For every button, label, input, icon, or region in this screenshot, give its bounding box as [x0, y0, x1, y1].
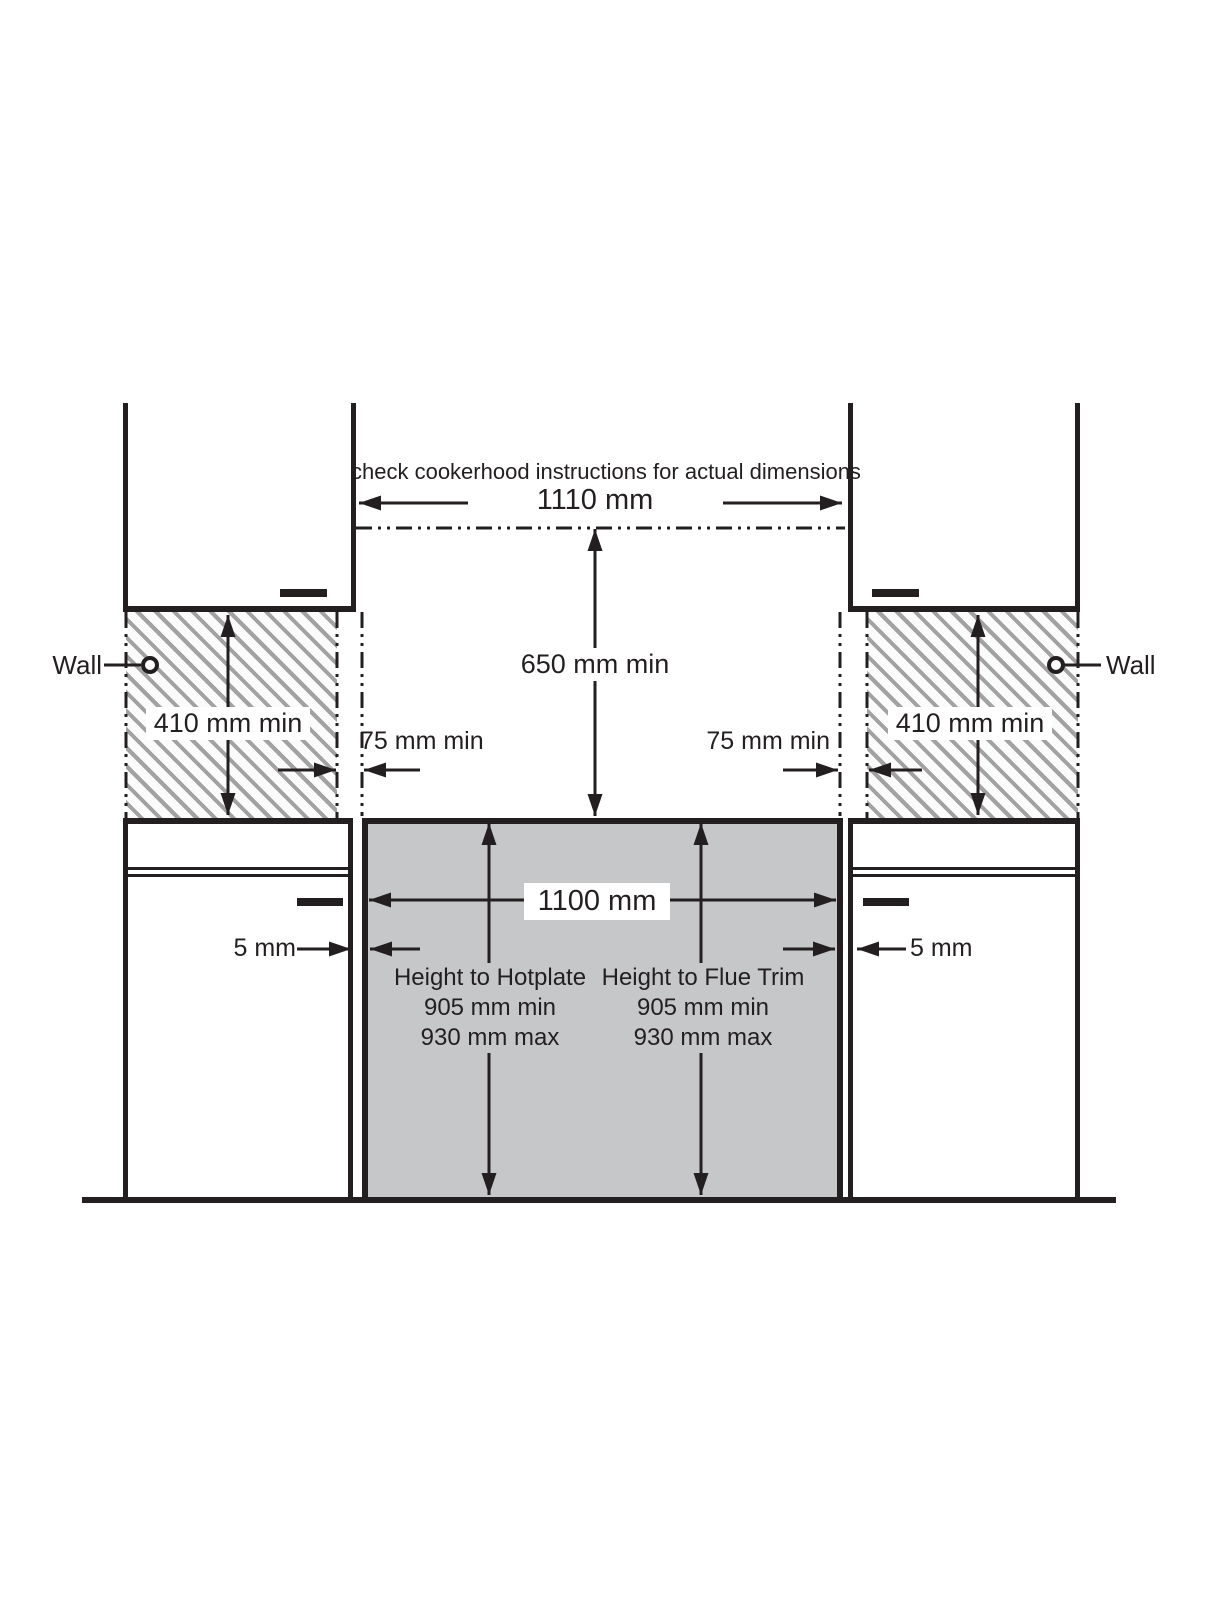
- wall-label-right: Wall: [1106, 650, 1196, 681]
- floor-line: [82, 1197, 1116, 1203]
- dim-label-1100: 1100 mm: [497, 883, 697, 920]
- installation-diagram: check cookerhood instructions for actual…: [0, 0, 1208, 1611]
- cabinet-handle: [872, 589, 919, 597]
- cookerhood-note: check cookerhood instructions for actual…: [351, 459, 851, 485]
- drawer-divider: [128, 867, 348, 877]
- hotplate-title: Height to Hotplate: [385, 963, 595, 993]
- dim-label-1110: 1110 mm: [495, 484, 695, 517]
- cabinet-handle: [280, 589, 327, 597]
- drawer-divider: [853, 867, 1075, 877]
- dim-label-5-right: 5 mm: [910, 934, 984, 963]
- dim-label-5-left: 5 mm: [222, 934, 296, 963]
- flue-max: 930 mm max: [598, 1023, 808, 1053]
- hotplate-min: 905 mm min: [385, 993, 595, 1023]
- base-cabinet-right: [848, 818, 1080, 1198]
- cabinet-handle: [297, 898, 343, 906]
- base-cabinet-left: [123, 818, 353, 1198]
- height-to-hotplate-block: Height to Hotplate 905 mm min 930 mm max: [385, 963, 595, 1053]
- dim-label-75-right: 75 mm min: [690, 727, 830, 756]
- dim-label-410-right: 410 mm min: [870, 707, 1070, 740]
- wall-label-left: Wall: [36, 650, 102, 681]
- height-to-flue-trim-block: Height to Flue Trim 905 mm min 930 mm ma…: [598, 963, 808, 1053]
- flue-min: 905 mm min: [598, 993, 808, 1023]
- upper-cabinet-right: [848, 403, 1080, 612]
- flue-title: Height to Flue Trim: [598, 963, 808, 993]
- dim-label-75-left: 75 mm min: [360, 727, 500, 756]
- hotplate-max: 930 mm max: [385, 1023, 595, 1053]
- upper-cabinet-left: [123, 403, 356, 612]
- dim-label-650: 650 mm min: [495, 648, 695, 681]
- dim-label-410-left: 410 mm min: [128, 707, 328, 740]
- cabinet-handle: [863, 898, 909, 906]
